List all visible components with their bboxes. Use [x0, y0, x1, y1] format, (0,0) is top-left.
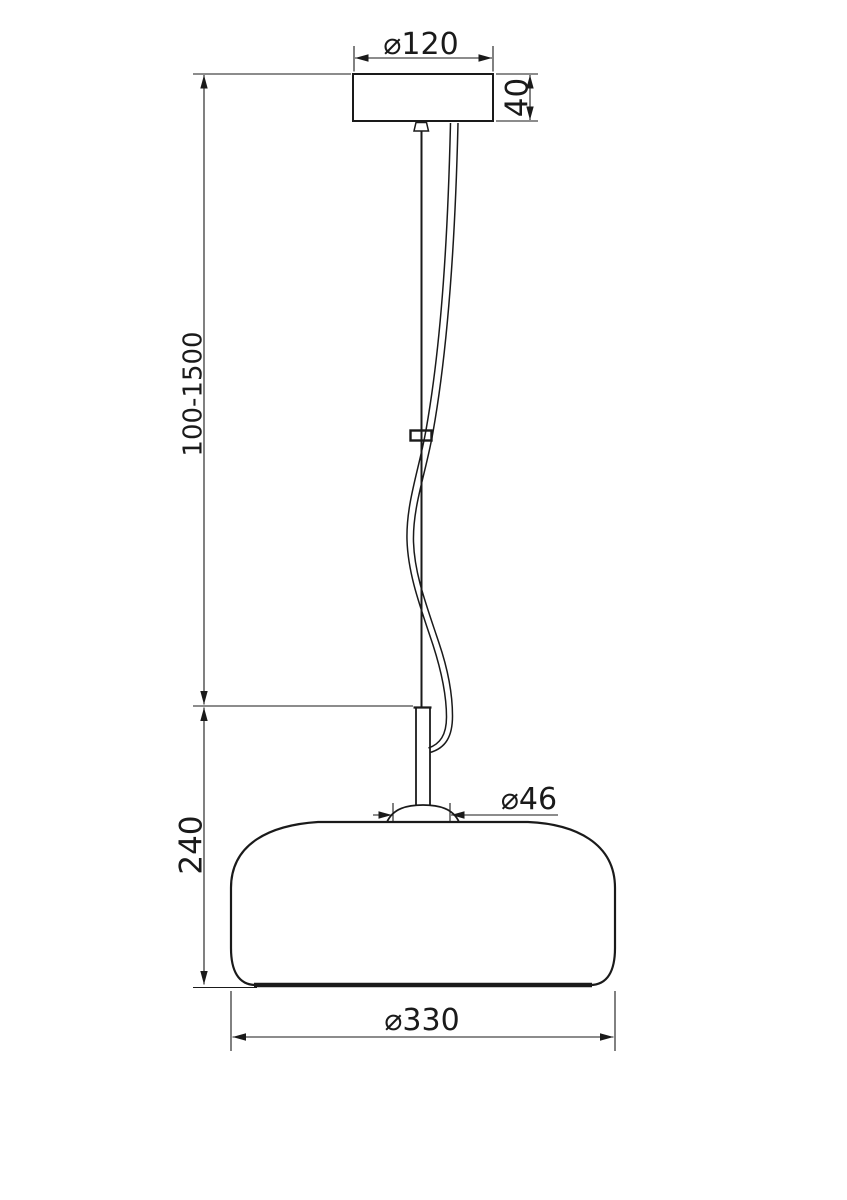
- dim-suspension-length: 100-1500: [179, 74, 414, 706]
- stem-dome: [387, 805, 459, 822]
- drawing-page: ⌀120 40 100-1500 240 ⌀46 ⌀330: [0, 0, 847, 1200]
- lamp-fixture: [231, 74, 615, 985]
- lamp-shade: [231, 822, 615, 985]
- dimension-label: ⌀46: [501, 782, 557, 817]
- dim-canopy-diameter: ⌀120: [354, 27, 493, 72]
- pendant-lamp-dimension-drawing: ⌀120 40 100-1500 240 ⌀46 ⌀330: [0, 0, 847, 1200]
- dimension-label: 100-1500: [179, 331, 209, 456]
- dim-canopy-height: 40: [496, 74, 538, 121]
- dimension-label: 40: [500, 78, 536, 117]
- mounting-nipple: [414, 123, 429, 132]
- power-cable: [407, 123, 451, 748]
- dimension-label: 240: [174, 815, 210, 874]
- dimension-label: ⌀330: [384, 1003, 459, 1038]
- dimension-label: ⌀120: [383, 27, 458, 62]
- ceiling-canopy: [353, 74, 493, 121]
- dim-shade-diameter: ⌀330: [231, 991, 615, 1051]
- power-cable: [413, 123, 458, 753]
